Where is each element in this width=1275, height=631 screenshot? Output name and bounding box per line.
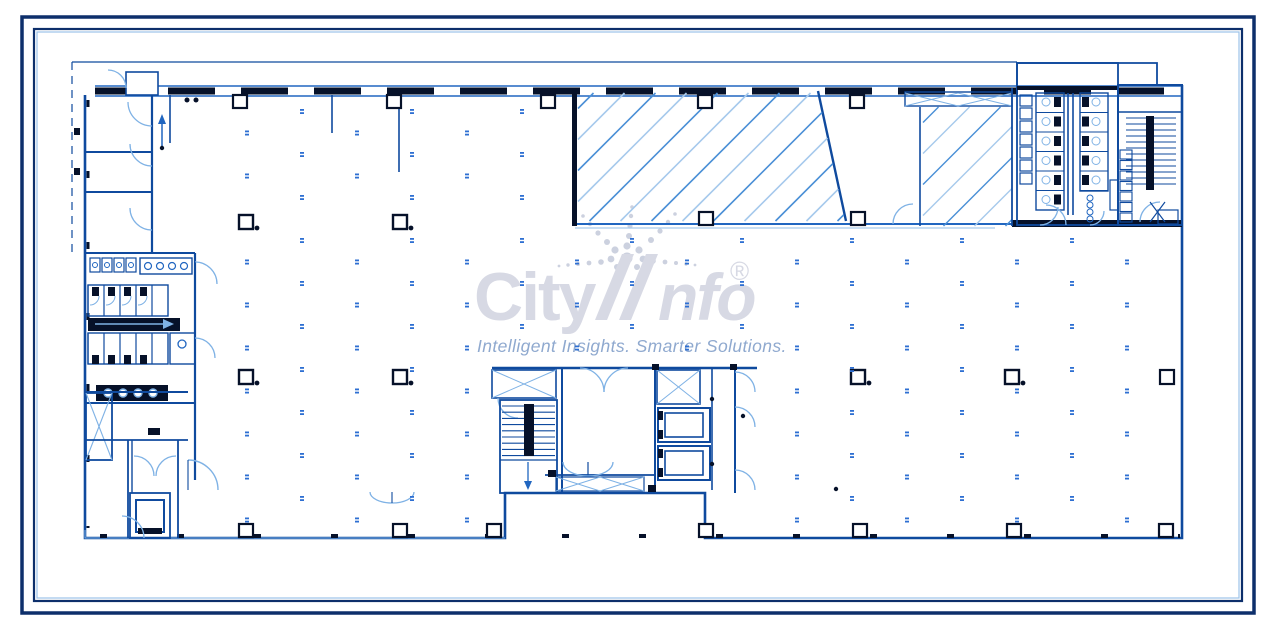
watermark-brand-city: City — [474, 259, 597, 335]
rooms-bottom-left — [86, 392, 188, 538]
registered-trademark-icon: ® — [730, 256, 749, 286]
stairwell-top-right — [1118, 85, 1182, 225]
restroom-block-top-right — [1017, 63, 1118, 225]
hatched-area-main — [578, 93, 844, 221]
restroom-block-left — [86, 253, 195, 403]
floor-plan-drawing: City nfo ® Intelligent Insights. Smarter… — [0, 0, 1275, 631]
central-core — [492, 364, 757, 493]
sheet-border-frame — [22, 17, 1254, 613]
watermark-slash-glyphs — [595, 254, 658, 320]
exterior-walls — [72, 62, 1182, 538]
floor-plan-sheet: City nfo ® Intelligent Insights. Smarter… — [0, 0, 1275, 631]
watermark-tagline: Intelligent Insights. Smarter Solutions. — [477, 336, 787, 356]
hatched-area-right — [905, 88, 1012, 226]
